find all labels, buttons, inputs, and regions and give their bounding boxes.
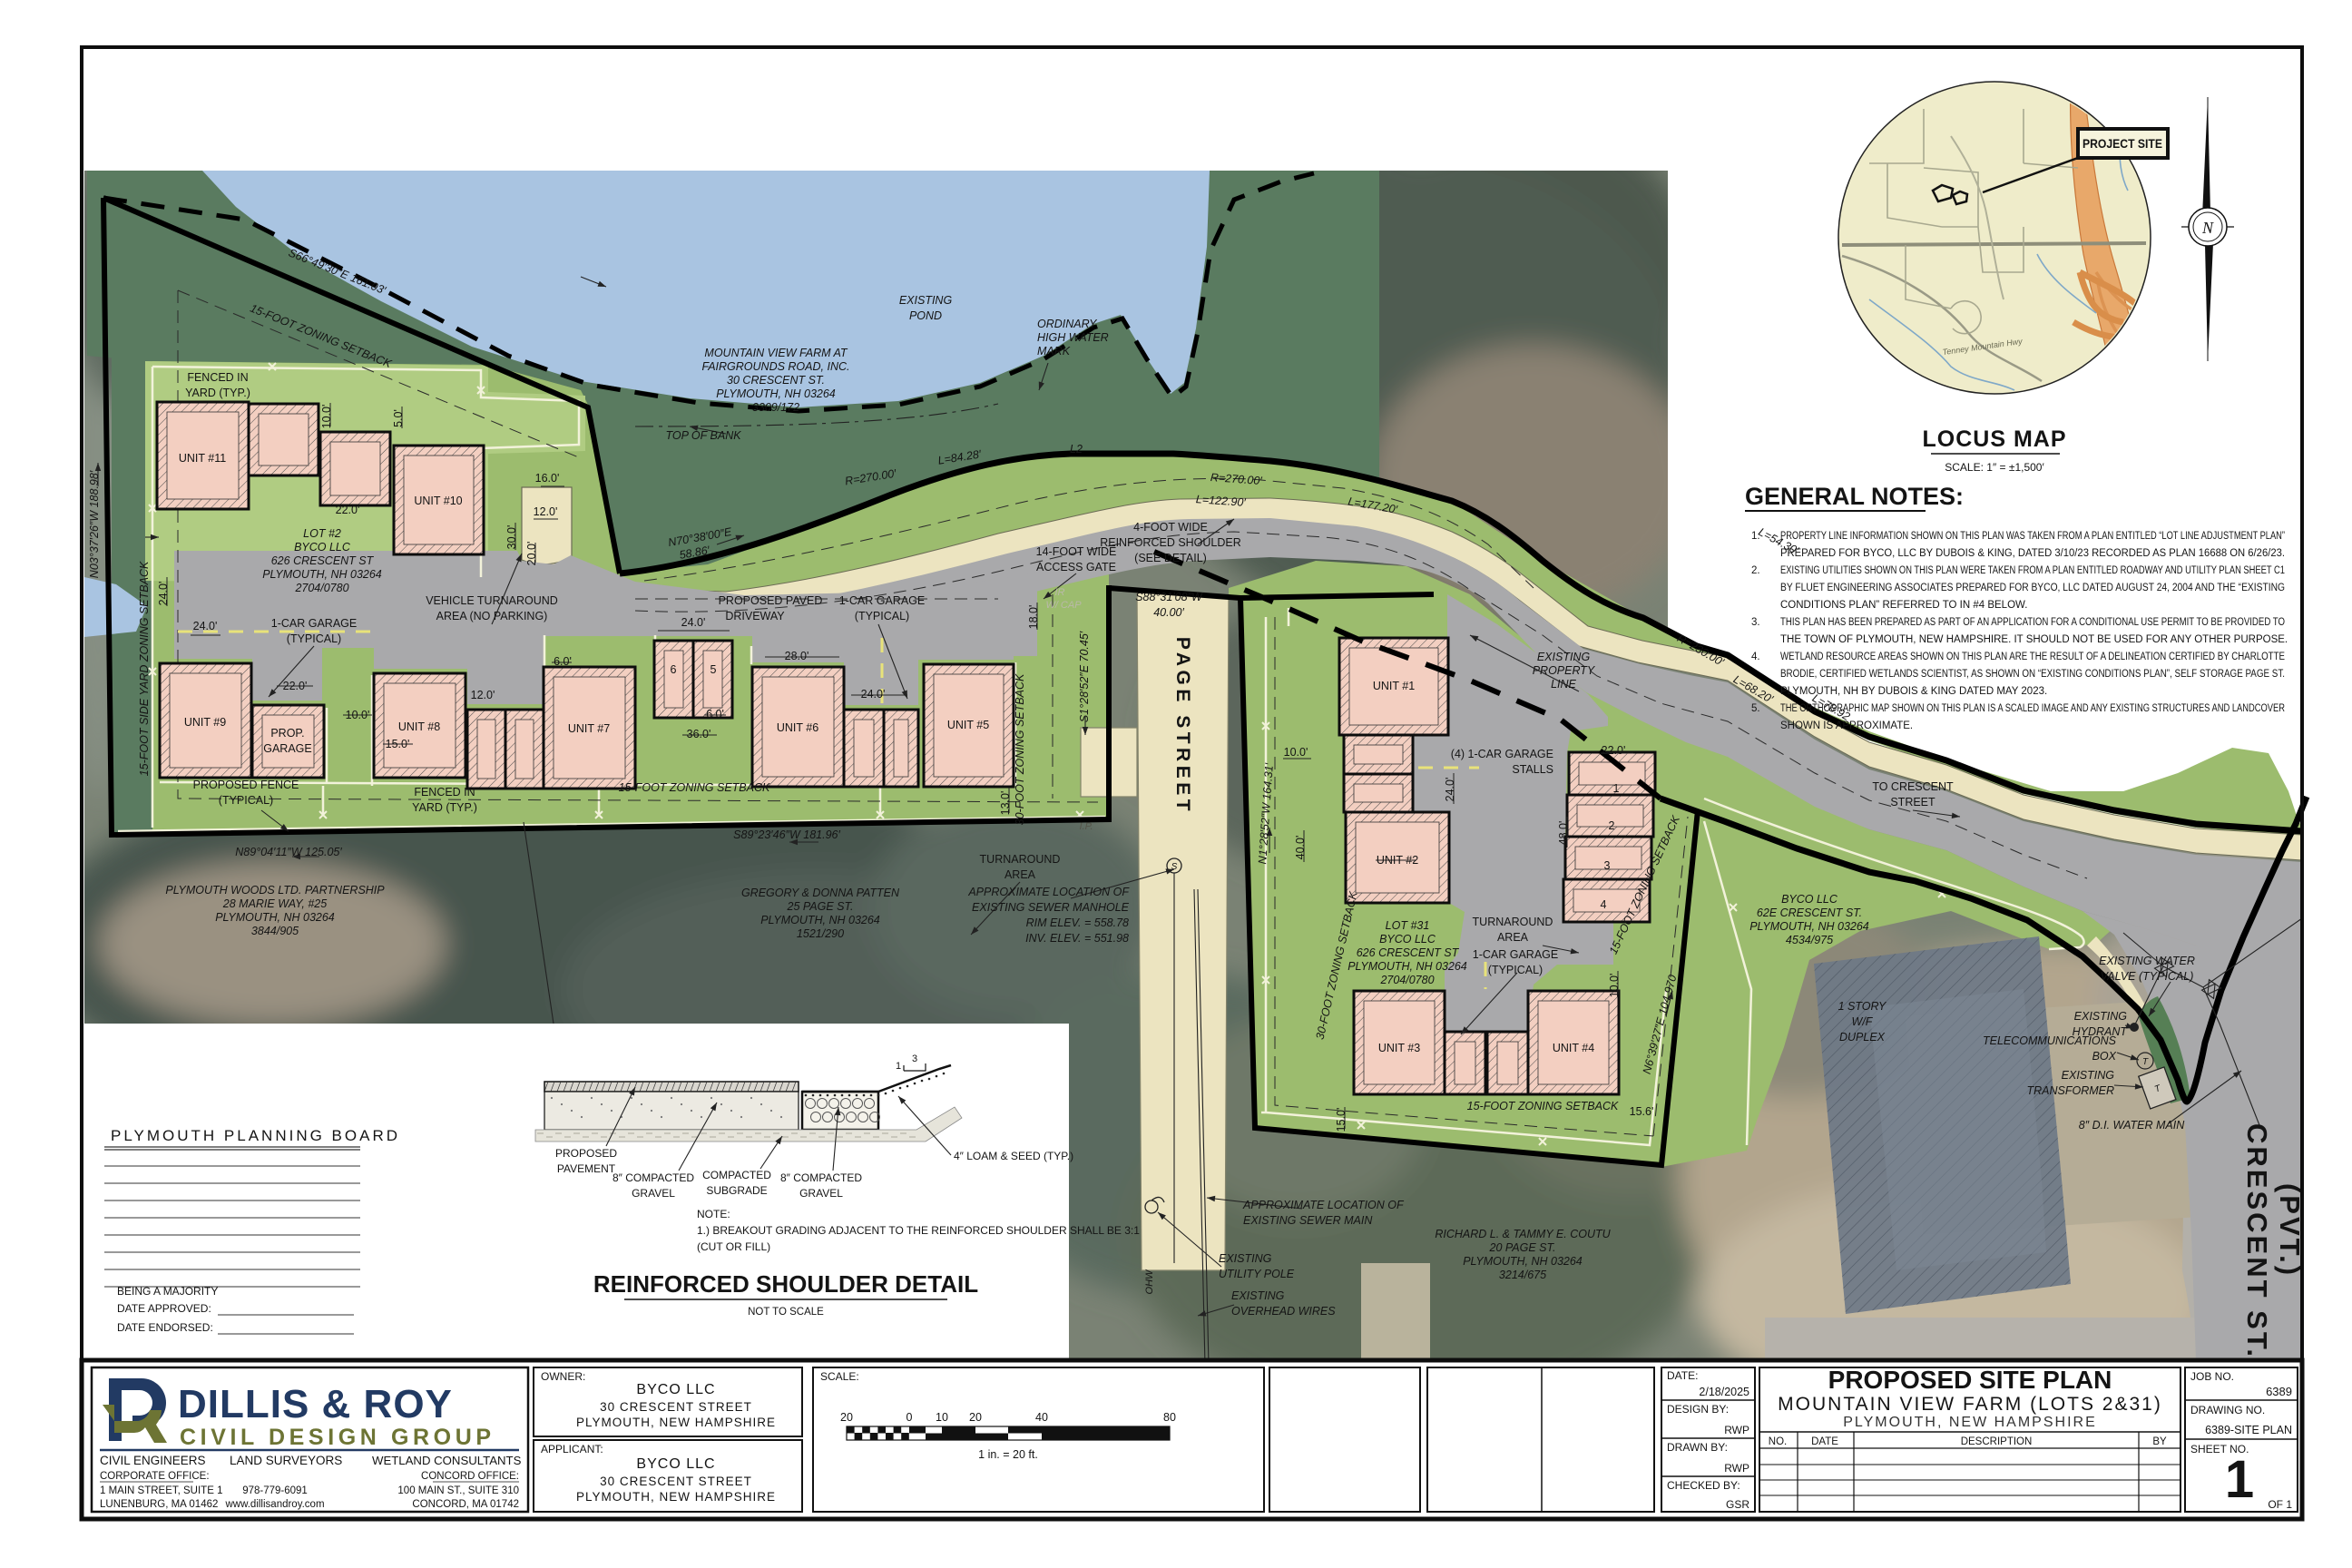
svg-text:SHOWN IS APPROXIMATE.: SHOWN IS APPROXIMATE.	[1780, 720, 1913, 731]
svg-text:(4) 1-CAR GARAGE: (4) 1-CAR GARAGE	[1451, 748, 1553, 760]
svg-text:FENCED IN: FENCED IN	[187, 371, 248, 384]
svg-text:UTILITY POLE: UTILITY POLE	[1219, 1268, 1295, 1280]
svg-text:PROP.: PROP.	[270, 727, 304, 740]
svg-text:UNIT #6: UNIT #6	[777, 721, 818, 734]
svg-text:18.0': 18.0'	[1027, 605, 1040, 630]
svg-text:UNIT #1: UNIT #1	[1373, 680, 1415, 692]
svg-text:STREET: STREET	[1890, 796, 1935, 808]
svg-text:DESIGN BY:: DESIGN BY:	[1667, 1403, 1729, 1416]
svg-text:LAND SURVEYORS: LAND SURVEYORS	[230, 1454, 342, 1467]
svg-text:CONDITIONS PLAN” REFERRED TO I: CONDITIONS PLAN” REFERRED TO IN #4 BELOW…	[1780, 600, 2027, 611]
svg-text:YARD (TYP.): YARD (TYP.)	[185, 387, 250, 399]
svg-text:20: 20	[840, 1411, 853, 1424]
svg-text:1.) BREAKOUT GRADING ADJACENT: 1.) BREAKOUT GRADING ADJACENT TO THE REI…	[697, 1224, 1140, 1237]
svg-text:6389-SITE PLAN: 6389-SITE PLAN	[2205, 1424, 2292, 1436]
svg-text:EXISTING: EXISTING	[2074, 1010, 2128, 1023]
svg-text:PLYMOUTH, NH 03264: PLYMOUTH, NH 03264	[716, 387, 836, 400]
svg-text:N89°04′11″W 125.05′: N89°04′11″W 125.05′	[235, 846, 342, 858]
svg-text:AREA: AREA	[1004, 868, 1036, 881]
svg-text:1-CAR GARAGE: 1-CAR GARAGE	[1473, 948, 1558, 961]
svg-text:BEING A MAJORITY: BEING A MAJORITY	[117, 1285, 218, 1298]
svg-text:2704/0780: 2704/0780	[1379, 974, 1434, 986]
svg-text:MOUNTAIN VIEW FARM AT: MOUNTAIN VIEW FARM AT	[704, 347, 848, 359]
svg-text:100 MAIN ST., SUITE 310: 100 MAIN ST., SUITE 310	[397, 1485, 519, 1496]
svg-text:1: 1	[896, 1061, 901, 1072]
svg-text:2.: 2.	[1751, 565, 1760, 576]
svg-text:PLYMOUTH, NH 03264: PLYMOUTH, NH 03264	[1749, 920, 1869, 933]
svg-text:EXISTING: EXISTING	[1219, 1252, 1272, 1265]
svg-text:978-779-6091: 978-779-6091	[242, 1485, 308, 1496]
svg-text:10: 10	[936, 1411, 948, 1424]
svg-text:PREPARED FOR BYCO, LLC BY DUBO: PREPARED FOR BYCO, LLC BY DUBOIS & KING,…	[1780, 548, 2285, 559]
svg-text:1-CAR GARAGE: 1-CAR GARAGE	[271, 617, 357, 630]
svg-text:15-FOOT SIDE YARD ZONING SETBA: 15-FOOT SIDE YARD ZONING SETBACK	[138, 561, 151, 776]
svg-text:28.0': 28.0'	[785, 650, 809, 662]
svg-text:4.: 4.	[1751, 652, 1760, 662]
svg-text:PLYMOUTH WOODS LTD. PARTNERSHI: PLYMOUTH WOODS LTD. PARTNERSHIP	[165, 884, 385, 897]
svg-text:22.0': 22.0'	[336, 504, 360, 516]
svg-text:62E CRESCENT ST.: 62E CRESCENT ST.	[1757, 906, 1862, 919]
svg-text:WETLAND CONSULTANTS: WETLAND CONSULTANTS	[372, 1454, 522, 1467]
svg-text:2/18/2025: 2/18/2025	[1699, 1386, 1749, 1398]
svg-text:3309/172: 3309/172	[752, 401, 799, 414]
svg-text:LOT #31: LOT #31	[1386, 919, 1430, 932]
svg-text:MOUNTAIN VIEW FARM (LOTS 2: MOUNTAIN VIEW FARM (LOTS 2&31)	[1778, 1394, 2162, 1415]
svg-text:LINE: LINE	[1551, 678, 1576, 691]
svg-text:626 CRESCENT ST: 626 CRESCENT ST	[271, 554, 375, 567]
svg-text:UNIT #3: UNIT #3	[1378, 1042, 1420, 1054]
svg-text:1 in. = 20 ft.: 1 in. = 20 ft.	[978, 1448, 1038, 1461]
svg-text:SCALE:: SCALE:	[820, 1370, 859, 1383]
svg-text:3: 3	[912, 1053, 917, 1064]
svg-text:JOB NO.: JOB NO.	[2190, 1370, 2234, 1383]
svg-text:CRESCENT ST.: CRESCENT ST.	[2241, 1123, 2273, 1359]
svg-text:EXISTING WATER: EXISTING WATER	[2099, 955, 2195, 967]
svg-text:DRAWN BY:: DRAWN BY:	[1667, 1441, 1728, 1454]
svg-text:NOTE:: NOTE:	[697, 1208, 730, 1220]
svg-text:5.0': 5.0'	[392, 409, 405, 427]
svg-text:CIVIL DESIGN GROUP: CIVIL DESIGN GROUP	[180, 1425, 495, 1450]
svg-text:PLYMOUTH, NH 03264: PLYMOUTH, NH 03264	[215, 911, 335, 924]
svg-text:0: 0	[906, 1411, 913, 1424]
svg-text:RWP: RWP	[1724, 1424, 1749, 1436]
svg-text:UNIT #10: UNIT #10	[414, 495, 462, 507]
svg-text:UNIT #11: UNIT #11	[179, 452, 226, 465]
svg-text:YARD (TYP.): YARD (TYP.)	[412, 801, 477, 814]
svg-text:FENCED IN: FENCED IN	[414, 786, 475, 799]
svg-text:PLYMOUTH, NEW HAMPSHIRE: PLYMOUTH, NEW HAMPSHIRE	[576, 1490, 776, 1504]
svg-text:10.0': 10.0'	[346, 709, 370, 721]
svg-text:GARAGE: GARAGE	[263, 742, 312, 755]
svg-text:1.: 1.	[1751, 531, 1760, 542]
svg-text:30 CRESCENT STREET: 30 CRESCENT STREET	[600, 1400, 752, 1414]
svg-text:CIVIL ENGINEERS: CIVIL ENGINEERS	[100, 1454, 206, 1467]
svg-text:DRIVEWAY: DRIVEWAY	[725, 610, 785, 622]
svg-text:STALLS: STALLS	[1512, 763, 1553, 776]
svg-text:PLYMOUTH, NEW HAMPSHIRE: PLYMOUTH, NEW HAMPSHIRE	[1843, 1415, 2097, 1430]
svg-text:BYCO LLC: BYCO LLC	[636, 1456, 715, 1472]
svg-text:PLYMOUTH, NH 03264: PLYMOUTH, NH 03264	[1463, 1255, 1583, 1268]
svg-text:PROPOSED PAVED: PROPOSED PAVED	[719, 594, 823, 607]
svg-text:APPROXIMATE LOCATION OF: APPROXIMATE LOCATION OF	[1242, 1199, 1405, 1211]
svg-text:13.0': 13.0'	[999, 791, 1012, 816]
svg-text:16.0': 16.0'	[535, 472, 560, 485]
svg-text:PLYMOUTH, NH 03264: PLYMOUTH, NH 03264	[262, 568, 382, 581]
svg-text:15-FOOT ZONING SETBACK: 15-FOOT ZONING SETBACK	[619, 781, 770, 794]
svg-text:NOT TO SCALE: NOT TO SCALE	[748, 1307, 824, 1318]
svg-text:GRAVEL: GRAVEL	[632, 1187, 675, 1200]
svg-text:VALVE (TYPICAL): VALVE (TYPICAL)	[2101, 970, 2194, 983]
svg-text:S1°28′52″E 70.45′: S1°28′52″E 70.45′	[1078, 631, 1091, 722]
svg-text:RWP: RWP	[1724, 1462, 1749, 1475]
svg-text:S89°23′46″W 181.96′: S89°23′46″W 181.96′	[733, 828, 840, 841]
svg-text:ORDINARY: ORDINARY	[1037, 318, 1098, 330]
svg-text:OVERHEAD WIRES: OVERHEAD WIRES	[1231, 1305, 1336, 1318]
svg-text:(CUT OR FILL): (CUT OR FILL)	[697, 1240, 770, 1253]
svg-text:40.0': 40.0'	[1294, 836, 1307, 860]
svg-text:W/ CAP: W/ CAP	[1045, 600, 1082, 611]
svg-text:DATE ENDORSED:: DATE ENDORSED:	[117, 1321, 213, 1334]
svg-text:THE ORTHOGRAPHIC MAP SHOWN ON: THE ORTHOGRAPHIC MAP SHOWN ON THIS PLAN …	[1780, 703, 2285, 714]
svg-text:15-FOOT ZONING SETBACK: 15-FOOT ZONING SETBACK	[1467, 1100, 1619, 1112]
svg-text:L2: L2	[1070, 443, 1083, 456]
svg-text:1: 1	[1613, 782, 1620, 795]
svg-text:22.0': 22.0'	[1602, 744, 1626, 757]
svg-text:GENERAL NOTES:: GENERAL NOTES:	[1745, 483, 1964, 510]
svg-text:FAIRGROUNDS ROAD, INC.: FAIRGROUNDS ROAD, INC.	[702, 360, 850, 373]
svg-text:HIGH WATER: HIGH WATER	[1037, 331, 1109, 344]
svg-text:5.: 5.	[1751, 703, 1760, 714]
svg-text:UNIT #4: UNIT #4	[1553, 1042, 1594, 1054]
svg-text:AREA: AREA	[1497, 931, 1529, 944]
svg-text:N03°37′26″W 188.98′: N03°37′26″W 188.98′	[88, 470, 101, 578]
svg-text:3844/905: 3844/905	[251, 925, 299, 937]
svg-text:PROPOSED SITE PLAN: PROPOSED SITE PLAN	[1828, 1366, 2112, 1394]
svg-text:20: 20	[969, 1411, 982, 1424]
svg-text:DRAWING NO.: DRAWING NO.	[2190, 1404, 2265, 1416]
svg-text:IR: IR	[1055, 587, 1065, 598]
svg-text:BRODIE, CERTIFIED WETLANDS SCI: BRODIE, CERTIFIED WETLANDS SCIENTIST, AS…	[1780, 669, 2285, 680]
svg-text:EXISTING: EXISTING	[1231, 1289, 1285, 1302]
svg-text:8″ COMPACTED: 8″ COMPACTED	[612, 1171, 694, 1184]
svg-text:COMPACTED: COMPACTED	[702, 1169, 771, 1181]
svg-text:80: 80	[1163, 1411, 1176, 1424]
svg-text:12.0': 12.0'	[471, 689, 495, 701]
svg-text:CONCORD OFFICE:: CONCORD OFFICE:	[421, 1471, 519, 1482]
svg-text:3.: 3.	[1751, 617, 1760, 628]
svg-text:BYCO LLC: BYCO LLC	[294, 541, 351, 554]
svg-text:15.0': 15.0'	[386, 738, 410, 750]
svg-text:(TYPICAL): (TYPICAL)	[855, 610, 909, 622]
svg-text:BY FLUET ENGINEERING ASSOCIATE: BY FLUET ENGINEERING ASSOCIATES PREPARED…	[1780, 583, 2285, 593]
svg-text:4: 4	[1601, 898, 1607, 911]
svg-text:SUBGRADE: SUBGRADE	[706, 1184, 767, 1197]
svg-text:LOCUS MAP: LOCUS MAP	[1923, 426, 2067, 452]
svg-text:EXISTING UTILITIES SHOWN ON TH: EXISTING UTILITIES SHOWN ON THIS PLAN WE…	[1780, 565, 2285, 576]
svg-text:LOT #2: LOT #2	[303, 527, 341, 540]
svg-text:6.0': 6.0'	[554, 655, 572, 668]
svg-text:DATE: DATE	[1811, 1436, 1838, 1447]
svg-text:PLYMOUTH, NEW HAMPSHIRE: PLYMOUTH, NEW HAMPSHIRE	[576, 1416, 776, 1429]
svg-text:RIM ELEV. = 558.78: RIM ELEV. = 558.78	[1026, 916, 1129, 929]
svg-text:THIS PLAN HAS BEEN PREPARED AS: THIS PLAN HAS BEEN PREPARED AS PART OF A…	[1780, 617, 2285, 628]
svg-text:25 PAGE ST.: 25 PAGE ST.	[787, 900, 854, 913]
svg-text:6: 6	[671, 663, 677, 676]
svg-text:EXISTING: EXISTING	[2062, 1069, 2115, 1082]
svg-text:BYCO LLC: BYCO LLC	[636, 1382, 715, 1397]
svg-text:4534/975: 4534/975	[1786, 934, 1833, 946]
svg-text:CONCORD, MA 01742: CONCORD, MA 01742	[412, 1499, 519, 1510]
svg-text:40.00′: 40.00′	[1153, 606, 1184, 619]
svg-text:UNIT #9: UNIT #9	[184, 716, 226, 729]
svg-text:24.0': 24.0'	[681, 616, 706, 629]
svg-text:BYCO LLC: BYCO LLC	[1781, 893, 1838, 906]
svg-text:PROPERTY LINE INFORMATION SHOW: PROPERTY LINE INFORMATION SHOWN ON THIS …	[1780, 531, 2285, 542]
svg-text:2: 2	[1609, 819, 1615, 832]
svg-text:DATE APPROVED:: DATE APPROVED:	[117, 1302, 211, 1315]
svg-text:12.0': 12.0'	[534, 505, 558, 518]
svg-text:TELECOMMUNICATIONS: TELECOMMUNICATIONS	[1983, 1034, 2117, 1047]
svg-text:48.0': 48.0'	[1557, 821, 1570, 846]
svg-text:MARK: MARK	[1037, 345, 1071, 358]
svg-text:30 CRESCENT ST.: 30 CRESCENT ST.	[727, 374, 825, 387]
svg-text:(SEE DETAIL): (SEE DETAIL)	[1134, 552, 1207, 564]
svg-text:24.0': 24.0'	[193, 620, 218, 632]
svg-text:TRANSFORMER: TRANSFORMER	[2026, 1084, 2114, 1097]
svg-text:REINFORCED SHOULDER: REINFORCED SHOULDER	[1100, 536, 1241, 549]
svg-text:www.dillisandroy.com: www.dillisandroy.com	[224, 1499, 324, 1510]
svg-text:GSR: GSR	[1726, 1498, 1749, 1511]
svg-text:2704/0780: 2704/0780	[294, 582, 348, 594]
svg-text:NO.: NO.	[1769, 1436, 1787, 1447]
svg-text:DILLIS & ROY: DILLIS & ROY	[178, 1382, 453, 1426]
svg-text:TURNAROUND: TURNAROUND	[980, 853, 1061, 866]
svg-text:6389: 6389	[2266, 1385, 2292, 1398]
svg-text:PLYMOUTH, NH 03264: PLYMOUTH, NH 03264	[1347, 960, 1467, 973]
svg-text:OWNER:: OWNER:	[541, 1370, 585, 1383]
svg-text:TO CRESCENT: TO CRESCENT	[1872, 780, 1954, 793]
svg-text:10.0': 10.0'	[1284, 746, 1308, 759]
svg-text:BY: BY	[2152, 1436, 2167, 1447]
svg-text:N: N	[2201, 219, 2214, 237]
svg-text:24.0': 24.0'	[1444, 778, 1456, 802]
svg-text:EXISTING: EXISTING	[899, 294, 953, 307]
svg-text:EXISTING SEWER MANHOLE: EXISTING SEWER MANHOLE	[972, 901, 1130, 914]
svg-text:PROPOSED FENCE: PROPOSED FENCE	[193, 779, 299, 791]
svg-text:24.0': 24.0'	[861, 688, 886, 701]
svg-text:30.0': 30.0'	[505, 525, 518, 550]
svg-text:UNIT #5: UNIT #5	[947, 719, 989, 731]
svg-text:BOX: BOX	[2092, 1050, 2117, 1063]
svg-text:LUNENBURG, MA 01462: LUNENBURG, MA 01462	[100, 1499, 218, 1510]
svg-text:OHW: OHW	[1144, 1269, 1155, 1295]
svg-text:W/F: W/F	[1852, 1015, 1874, 1028]
svg-text:8″ D.I. WATER MAIN: 8″ D.I. WATER MAIN	[2079, 1119, 2185, 1132]
svg-text:GREGORY & DONNA PATTEN: GREGORY & DONNA PATTEN	[741, 887, 900, 899]
svg-text:PLYMOUTH PLANNING BOARD: PLYMOUTH PLANNING BOARD	[111, 1127, 400, 1144]
svg-text:3: 3	[1604, 859, 1611, 872]
svg-text:20.0': 20.0'	[525, 542, 538, 566]
svg-text:3214/675: 3214/675	[1499, 1269, 1546, 1281]
svg-text:I.P.: I.P.	[1079, 821, 1093, 832]
svg-text:(TYPICAL): (TYPICAL)	[219, 794, 273, 807]
svg-text:BYCO LLC: BYCO LLC	[1379, 933, 1436, 946]
svg-text:EXISTING SEWER MAIN: EXISTING SEWER MAIN	[1243, 1214, 1373, 1227]
svg-text:(TYPICAL): (TYPICAL)	[287, 632, 341, 645]
svg-text:PAVEMENT: PAVEMENT	[557, 1162, 616, 1175]
svg-text:15.0': 15.0'	[1335, 1108, 1347, 1132]
svg-text:TOP OF BANK: TOP OF BANK	[665, 429, 741, 442]
svg-text:1 MAIN STREET, SUITE 1: 1 MAIN STREET, SUITE 1	[100, 1485, 222, 1496]
svg-text:5: 5	[710, 663, 717, 676]
svg-text:1521/290: 1521/290	[797, 927, 844, 940]
svg-text:POND: POND	[909, 309, 942, 322]
svg-text:6.0': 6.0'	[706, 708, 724, 720]
svg-text:TURNAROUND: TURNAROUND	[1473, 916, 1553, 928]
svg-text:ACCESS GATE: ACCESS GATE	[1036, 561, 1116, 573]
svg-text:4″ LOAM & SEED (TYP.): 4″ LOAM & SEED (TYP.)	[954, 1150, 1073, 1162]
svg-text:AREA (NO PARKING): AREA (NO PARKING)	[436, 610, 548, 622]
svg-text:CORPORATE OFFICE:: CORPORATE OFFICE:	[100, 1471, 210, 1482]
svg-text:SCALE: 1″ = ±1,500′: SCALE: 1″ = ±1,500′	[1945, 461, 2044, 474]
svg-text:PROJECT SITE: PROJECT SITE	[2082, 136, 2162, 151]
svg-text:OF 1: OF 1	[2268, 1498, 2292, 1511]
svg-text:T: T	[2142, 1057, 2149, 1067]
svg-text:20 PAGE ST.: 20 PAGE ST.	[1489, 1241, 1556, 1254]
svg-text:10.0': 10.0'	[320, 405, 333, 429]
svg-text:DESCRIPTION: DESCRIPTION	[1961, 1436, 2033, 1447]
svg-text:40: 40	[1035, 1411, 1048, 1424]
svg-text:EXISTING: EXISTING	[1537, 651, 1591, 663]
svg-text:INV. ELEV. = 551.98: INV. ELEV. = 551.98	[1025, 932, 1129, 945]
svg-text:22.0': 22.0'	[283, 680, 308, 692]
svg-text:THE TOWN OF PLYMOUTH, NEW HAMP: THE TOWN OF PLYMOUTH, NEW HAMPSHIRE. IT …	[1780, 634, 2288, 645]
svg-text:30 CRESCENT STREET: 30 CRESCENT STREET	[600, 1475, 752, 1488]
svg-text:15.6': 15.6'	[1630, 1105, 1654, 1118]
svg-text:24.0': 24.0'	[157, 582, 170, 606]
svg-text:CHECKED BY:: CHECKED BY:	[1667, 1479, 1740, 1492]
svg-text:PROPERTY: PROPERTY	[1533, 664, 1596, 677]
svg-text:DUPLEX: DUPLEX	[1839, 1031, 1886, 1044]
svg-text:(TYPICAL): (TYPICAL)	[1488, 964, 1543, 976]
svg-text:1: 1	[2225, 1450, 2254, 1509]
svg-text:10.0': 10.0'	[1608, 974, 1621, 998]
svg-text:GRAVEL: GRAVEL	[799, 1187, 843, 1200]
svg-text:PAGE STREET: PAGE STREET	[1172, 637, 1193, 815]
svg-text:4-FOOT WIDE: 4-FOOT WIDE	[1133, 521, 1208, 534]
svg-text:626 CRESCENT ST: 626 CRESCENT ST	[1357, 946, 1460, 959]
svg-text:8″ COMPACTED: 8″ COMPACTED	[780, 1171, 862, 1184]
svg-text:UNIT #7: UNIT #7	[568, 722, 610, 735]
svg-text:1-CAR GARAGE: 1-CAR GARAGE	[839, 594, 925, 607]
svg-text:PLYMOUTH, NH 03264: PLYMOUTH, NH 03264	[760, 914, 880, 926]
svg-text:UNIT #8: UNIT #8	[398, 720, 440, 733]
svg-text:VEHICLE TURNAROUND: VEHICLE TURNAROUND	[426, 594, 558, 607]
svg-text:36.0': 36.0'	[687, 728, 711, 740]
svg-text:S88°31′08″W: S88°31′08″W	[1135, 591, 1203, 603]
svg-text:REINFORCED SHOULDER DETAIL: REINFORCED SHOULDER DETAIL	[593, 1270, 978, 1298]
svg-text:30-FOOT ZONING SETBACK: 30-FOOT ZONING SETBACK	[1014, 673, 1026, 825]
svg-text:WETLAND RESOURCE AREAS SHOWN O: WETLAND RESOURCE AREAS SHOWN ON THIS PLA…	[1780, 652, 2285, 662]
svg-text:1 STORY: 1 STORY	[1838, 1000, 1887, 1013]
svg-text:APPLICANT:: APPLICANT:	[541, 1443, 603, 1455]
svg-text:PROPOSED: PROPOSED	[555, 1147, 617, 1160]
svg-text:RICHARD L. & TAMMY E. COUTU: RICHARD L. & TAMMY E. COUTU	[1435, 1228, 1611, 1240]
svg-text:DATE:: DATE:	[1667, 1369, 1698, 1382]
svg-text:PLYMOUTH, NH BY DUBOIS & KING: PLYMOUTH, NH BY DUBOIS & KING DATED MAY …	[1780, 686, 2047, 697]
svg-text:28 MARIE WAY, #25: 28 MARIE WAY, #25	[222, 897, 327, 910]
svg-text:APPROXIMATE LOCATION OF: APPROXIMATE LOCATION OF	[967, 886, 1130, 898]
svg-text:UNIT #2: UNIT #2	[1377, 854, 1418, 867]
